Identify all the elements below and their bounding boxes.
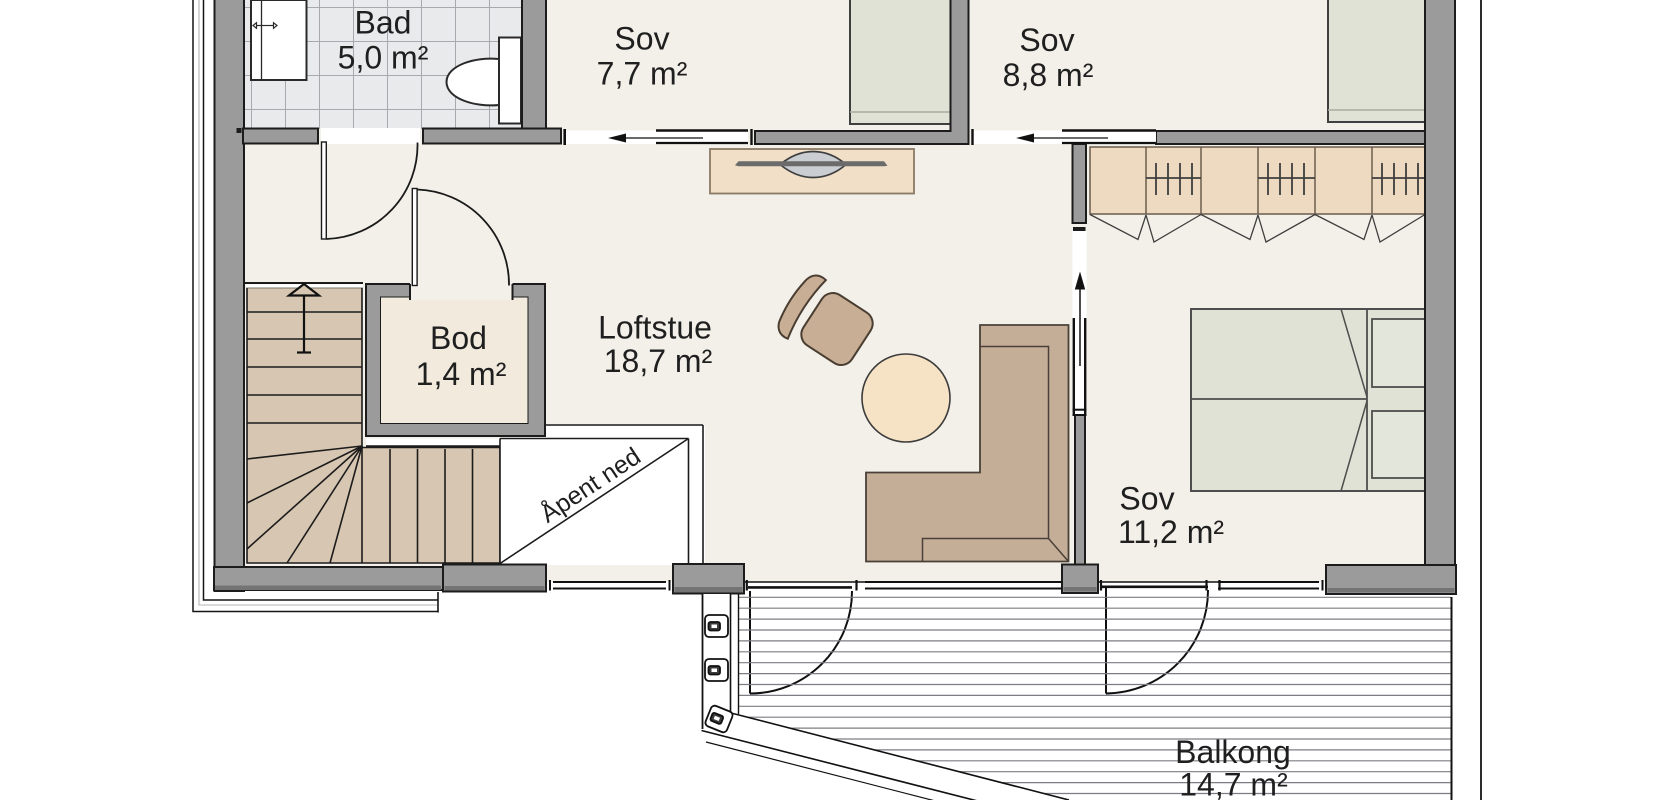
svg-text:Sov: Sov xyxy=(1019,22,1074,58)
svg-text:Bad: Bad xyxy=(355,5,412,41)
svg-text:Balkong: Balkong xyxy=(1175,734,1291,770)
svg-text:Sov: Sov xyxy=(1119,481,1174,517)
svg-text:1,4 m²: 1,4 m² xyxy=(416,356,507,392)
svg-text:18,7 m²: 18,7 m² xyxy=(604,343,713,379)
svg-text:11,2 m²: 11,2 m² xyxy=(1118,514,1224,550)
svg-text:5,0 m²: 5,0 m² xyxy=(338,40,429,76)
svg-text:7,7 m²: 7,7 m² xyxy=(597,56,688,92)
svg-text:Bod: Bod xyxy=(430,320,487,356)
svg-text:14,7 m²: 14,7 m² xyxy=(1179,767,1288,800)
svg-text:Loftstue: Loftstue xyxy=(598,310,712,346)
svg-text:8,8 m²: 8,8 m² xyxy=(1003,57,1094,93)
svg-text:Sov: Sov xyxy=(614,21,669,57)
